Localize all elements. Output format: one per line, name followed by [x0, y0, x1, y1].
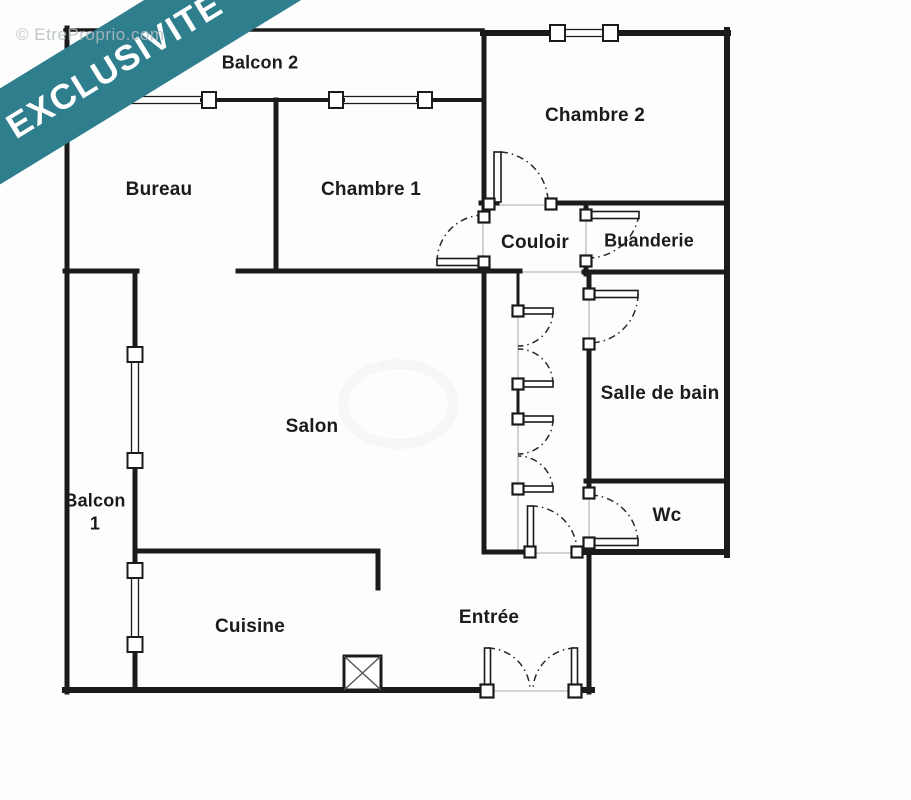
chimney-box-icon	[344, 656, 381, 690]
floor-plan-drawing	[0, 0, 911, 800]
room-label-chambre-1: Chambre 1	[321, 179, 421, 201]
room-label-chambre-2: Chambre 2	[545, 105, 645, 127]
room-label-balcon-1-num: 1	[90, 514, 100, 535]
site-watermark: © EtreProprio.com	[16, 25, 165, 45]
room-label-bureau: Bureau	[126, 179, 193, 201]
room-label-balcon-1: Balcon	[64, 491, 125, 512]
floorplan-page: Balcon 2 Bureau Chambre 1 Chambre 2 Coul…	[0, 0, 911, 800]
room-label-cuisine: Cuisine	[215, 616, 285, 638]
room-label-buanderie: Buanderie	[604, 231, 694, 252]
room-label-couloir: Couloir	[501, 232, 569, 254]
room-label-salon: Salon	[286, 416, 339, 438]
room-label-entree: Entrée	[459, 607, 519, 629]
room-label-salle-de-bain: Salle de bain	[601, 383, 720, 405]
watermark-smudge	[343, 350, 489, 456]
window-symbols	[105, 25, 618, 652]
room-label-wc: Wc	[653, 505, 682, 527]
room-label-balcon-2: Balcon 2	[222, 53, 299, 74]
